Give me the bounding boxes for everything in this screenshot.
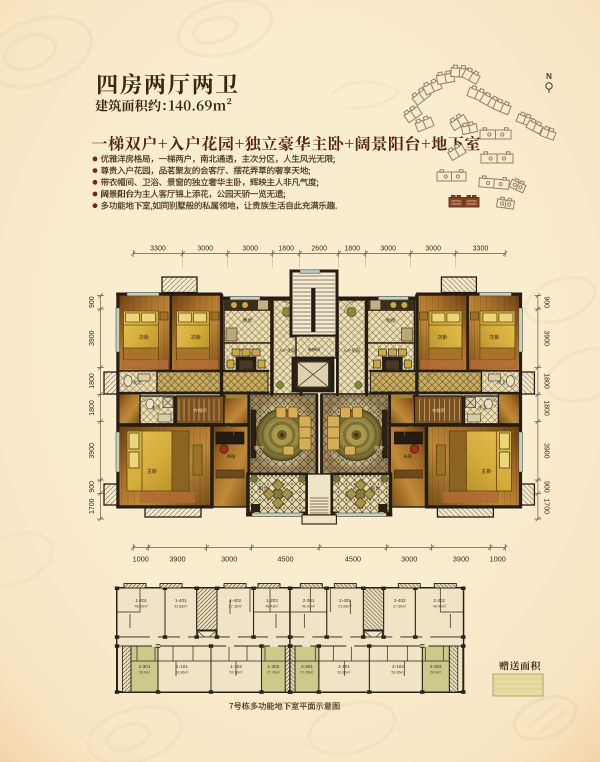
svg-text:3900: 3900: [543, 443, 550, 459]
svg-text:3000: 3000: [242, 246, 258, 253]
svg-text:23.68m²: 23.68m²: [174, 605, 188, 609]
svg-text:46.43m²: 46.43m²: [433, 605, 447, 609]
svg-text:1800: 1800: [89, 400, 96, 416]
svg-text:2-102: 2-102: [392, 664, 404, 669]
svg-text:1-301: 1-301: [139, 664, 151, 669]
svg-text:27.76m²: 27.76m²: [300, 671, 314, 675]
svg-text:3300: 3300: [473, 246, 489, 253]
svg-text:900: 900: [89, 481, 96, 493]
svg-text:N: N: [546, 72, 552, 81]
svg-text:1700: 1700: [89, 498, 96, 514]
svg-text:900: 900: [542, 296, 549, 308]
svg-text:3300: 3300: [150, 246, 166, 253]
svg-text:53.96m²: 53.96m²: [229, 671, 243, 675]
svg-text:3900: 3900: [453, 555, 469, 564]
svg-text:27.36m²: 27.36m²: [393, 605, 407, 609]
svg-text:3900: 3900: [89, 330, 96, 346]
svg-text:46.43m²: 46.43m²: [265, 605, 279, 609]
svg-text:53.96m²: 53.96m²: [337, 671, 351, 675]
svg-text:1-201: 1-201: [135, 598, 147, 603]
svg-text:53.96m²: 53.96m²: [391, 671, 405, 675]
svg-text:53.96m²: 53.96m²: [175, 671, 189, 675]
svg-text:2-301: 2-301: [301, 664, 313, 669]
svg-text:2-202: 2-202: [433, 598, 445, 603]
svg-text:27.76m²: 27.76m²: [267, 671, 281, 675]
svg-text:46.43m²: 46.43m²: [135, 605, 149, 609]
svg-text:23.68m²: 23.68m²: [338, 605, 352, 609]
svg-text:3000: 3000: [380, 246, 396, 253]
svg-text:900: 900: [89, 296, 96, 308]
svg-text:1-102: 1-102: [230, 664, 242, 669]
svg-text:27.36m²: 27.36m²: [229, 605, 243, 609]
svg-text:3900: 3900: [169, 555, 185, 564]
svg-text:3000: 3000: [221, 555, 237, 564]
svg-text:1800: 1800: [543, 373, 550, 389]
svg-text:3000: 3000: [197, 246, 213, 253]
svg-text:1800: 1800: [89, 373, 96, 389]
svg-text:28.9m²: 28.9m²: [139, 671, 151, 675]
svg-text:1000: 1000: [133, 555, 149, 564]
svg-text:1-302: 1-302: [268, 664, 280, 669]
svg-text:46.43m²: 46.43m²: [302, 605, 316, 609]
svg-text:1-402: 1-402: [229, 598, 241, 603]
svg-text:4500: 4500: [345, 555, 361, 564]
svg-text:900: 900: [543, 481, 550, 493]
svg-text:2-201: 2-201: [303, 598, 315, 603]
svg-text:2-402: 2-402: [394, 598, 406, 603]
svg-text:2600: 2600: [311, 246, 327, 253]
svg-text:3000: 3000: [425, 246, 441, 253]
svg-text:1-401: 1-401: [175, 598, 187, 603]
svg-text:1800: 1800: [344, 246, 360, 253]
svg-text:1800: 1800: [543, 400, 550, 416]
svg-text:28.9m²: 28.9m²: [430, 671, 442, 675]
svg-text:1-101: 1-101: [176, 664, 188, 669]
svg-text:4500: 4500: [277, 555, 293, 564]
svg-text:1-202: 1-202: [266, 598, 278, 603]
svg-text:1000: 1000: [490, 555, 506, 564]
svg-text:3900: 3900: [89, 443, 96, 459]
svg-text:1800: 1800: [278, 246, 294, 253]
svg-text:3900: 3900: [542, 330, 549, 346]
svg-text:2-401: 2-401: [339, 598, 351, 603]
svg-text:2-101: 2-101: [338, 664, 350, 669]
svg-text:1700: 1700: [542, 498, 549, 514]
svg-text:3000: 3000: [401, 555, 417, 564]
svg-text:2-302: 2-302: [430, 664, 442, 669]
